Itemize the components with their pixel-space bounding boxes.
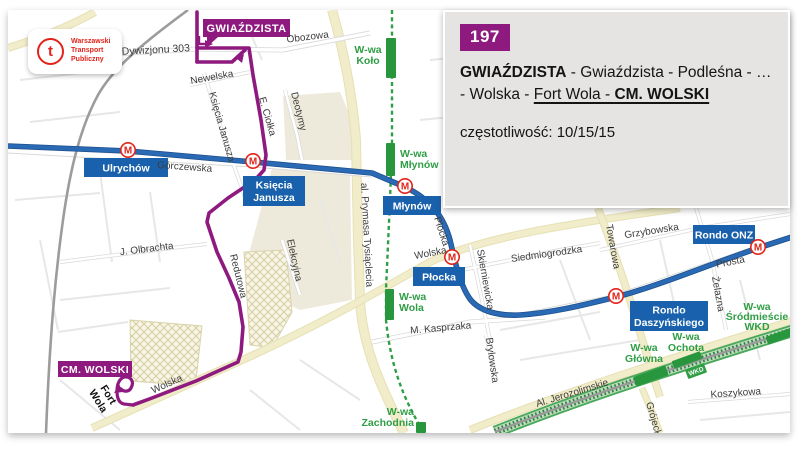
route-start: GWIAŹDZISTA: [460, 64, 566, 81]
terminal-end-label: CM. WOLSKI: [61, 364, 129, 376]
metro-icon-rondo-onz: M: [751, 240, 765, 254]
route-description: GWIAŹDZISTA - Gwiaździsta - Podleśna - ……: [460, 62, 772, 106]
metro-icon-ulrychow: M: [121, 143, 135, 157]
svg-text:Główna: Główna: [625, 353, 663, 365]
terminal-end: CM. WOLSKI: [58, 361, 132, 377]
svg-text:Rondo ONZ: Rondo ONZ: [695, 230, 754, 242]
metro-label-rondo-onz: Rondo ONZ: [693, 225, 755, 244]
wtp-brand-name: Warszawski Transport Publiczny: [71, 38, 110, 64]
svg-text:Janusza: Janusza: [253, 192, 295, 204]
svg-text:Zachodnia: Zachodnia: [361, 417, 414, 429]
metro-label-rondo-daszynskiego: Rondo Daszyńskiego: [630, 301, 708, 331]
metro-label-ulrychow: Ulrychów: [84, 158, 168, 177]
wtp-logo-icon: t: [37, 38, 64, 65]
route-fort-wola: Fort Wola -: [534, 86, 615, 103]
svg-text:Rondo: Rondo: [652, 305, 685, 317]
svg-text:Księcia: Księcia: [256, 180, 293, 192]
rail-label-glowna: W-wa Główna: [625, 342, 663, 365]
svg-text:Daszyńskiego: Daszyńskiego: [634, 317, 704, 329]
frequency-label: częstotliwość:: [460, 124, 553, 141]
svg-text:M: M: [448, 252, 456, 263]
metro-icon-mlynow: M: [398, 179, 412, 193]
metro-label-plocka: Płocka: [413, 267, 465, 286]
svg-text:M: M: [401, 181, 409, 192]
svg-text:M: M: [612, 291, 620, 302]
metro-icon-rondo-daszynskiego: M: [609, 289, 623, 303]
line-number-badge: 197: [460, 24, 510, 51]
svg-text:Płocka: Płocka: [422, 272, 456, 284]
wtp-logo-letter: t: [48, 44, 53, 59]
svg-text:Młynów: Młynów: [400, 159, 439, 171]
rail-label-ochota: W-wa Ochota: [668, 331, 704, 354]
svg-text:M: M: [754, 242, 762, 253]
svg-text:Młynów: Młynów: [393, 201, 432, 213]
route-info-panel: 197 GWIAŹDZISTA - Gwiaździsta - Podleśna…: [443, 10, 790, 208]
metro-label-mlynow: Młynów: [383, 196, 441, 215]
metro-icon-ksiecia-janusza: M: [246, 154, 260, 168]
metro-icon-plocka: M: [445, 250, 459, 264]
route-map-screenshot: WKD GWIAŹDZISTA CM. WOLSKI: [0, 0, 800, 450]
svg-text:M: M: [249, 156, 257, 167]
frequency-line: częstotliwość: 10/15/15: [460, 124, 773, 141]
svg-text:Ochota: Ochota: [668, 342, 704, 354]
svg-text:Ulrychów: Ulrychów: [102, 163, 150, 175]
route-end: CM. WOLSKI: [614, 86, 709, 103]
rail-label-kolo: W-wa Koło: [354, 44, 381, 67]
svg-text:Wola: Wola: [399, 302, 424, 314]
wtp-logo-card: t Warszawski Transport Publiczny: [28, 29, 122, 74]
terminal-start-label: GWIAŹDZISTA: [207, 22, 287, 35]
frequency-value: 10/15/15: [557, 124, 615, 141]
svg-text:M: M: [124, 145, 132, 156]
rail-label-wola: W-wa Wola: [399, 291, 426, 314]
svg-text:Koło: Koło: [356, 55, 379, 67]
metro-label-ksiecia-janusza: Księcia Janusza: [243, 176, 305, 206]
svg-text:WKD: WKD: [744, 321, 769, 333]
